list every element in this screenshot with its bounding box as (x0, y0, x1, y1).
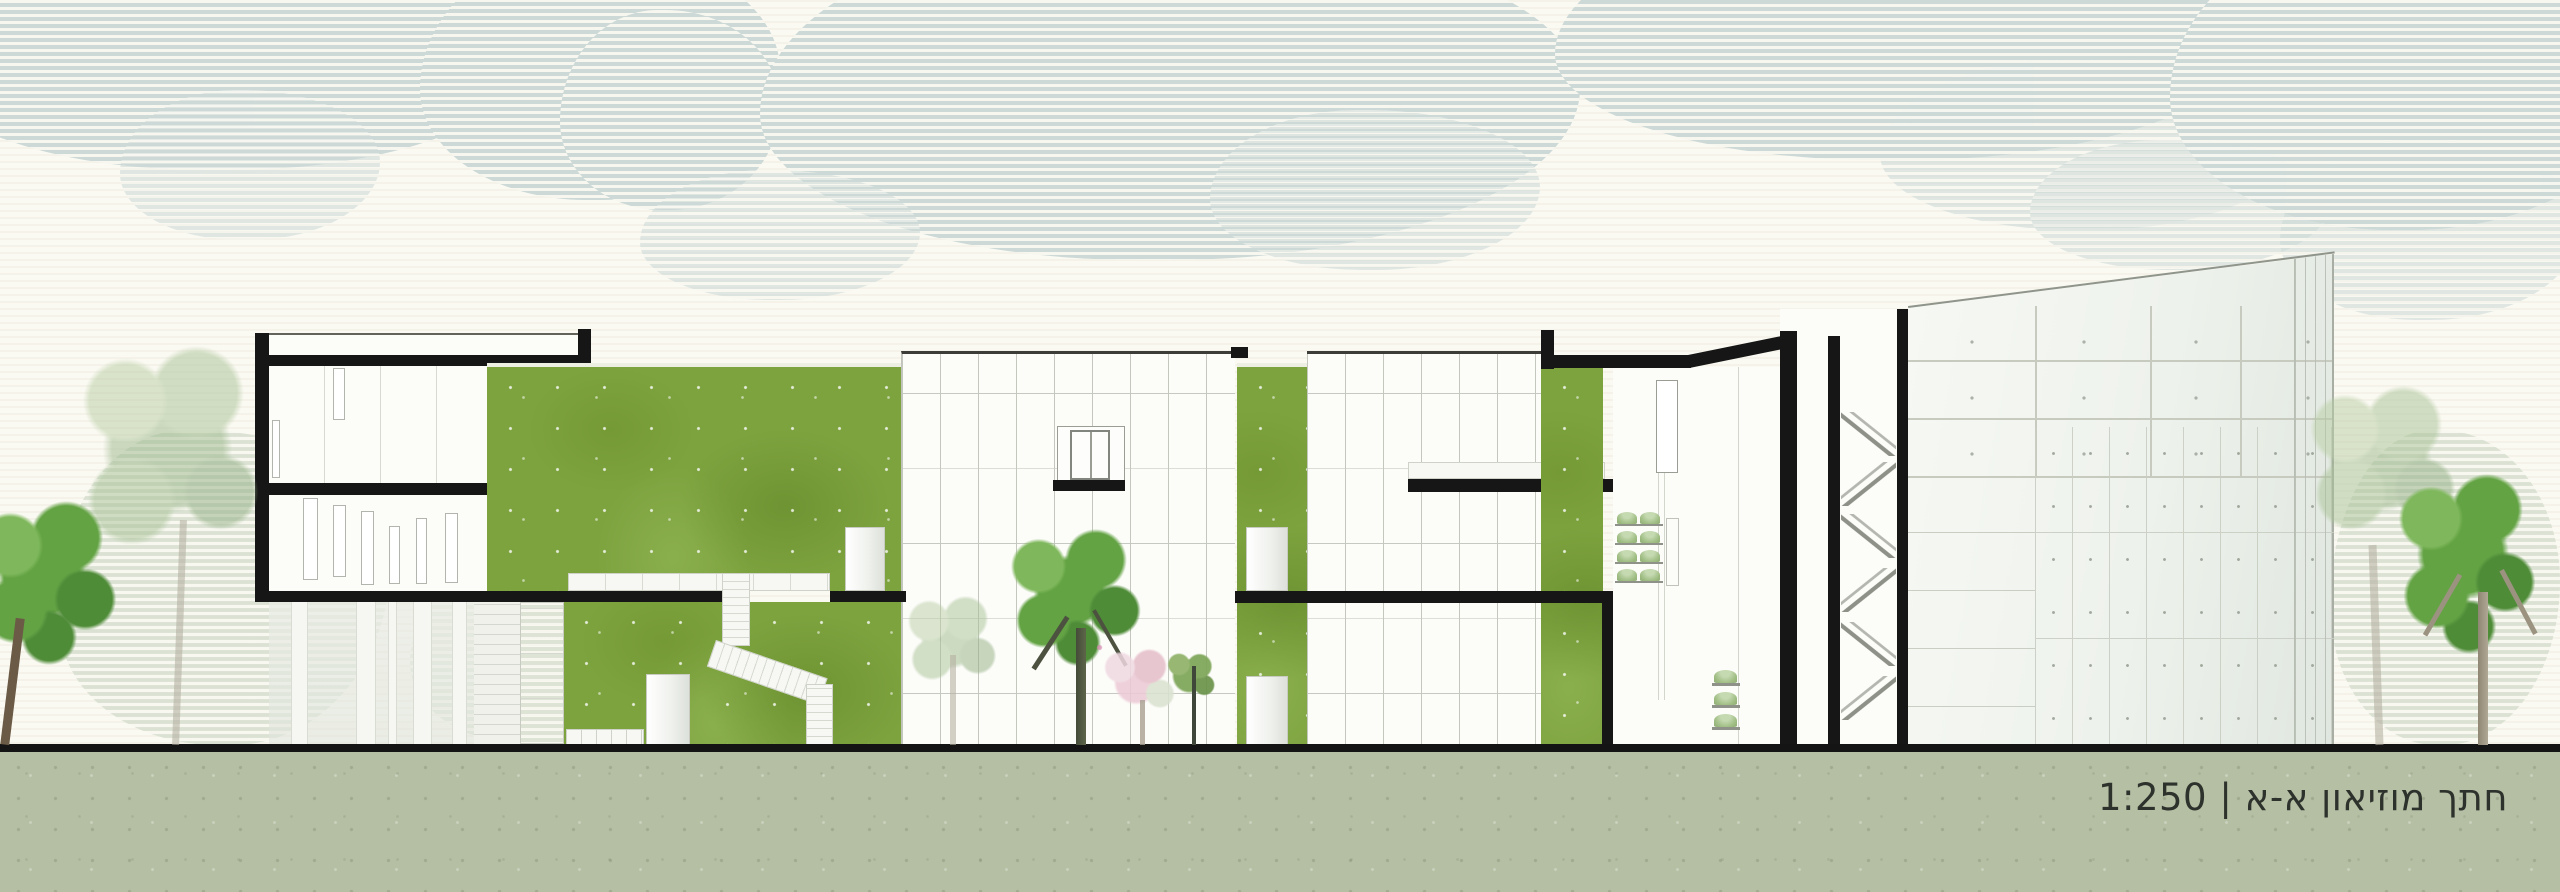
exhibit-panel (416, 518, 427, 584)
shelf-plant (1617, 550, 1637, 562)
tree-foreground-left (0, 482, 157, 697)
halftone-tree-mass (2030, 140, 2330, 270)
cut-wall (1828, 336, 1840, 753)
plant-shelf (1615, 524, 1663, 526)
stair-flight (1841, 462, 1896, 506)
facade-panels-middle (1307, 351, 1541, 745)
window (1070, 430, 1110, 480)
piloti-column (356, 602, 376, 744)
courtyard-slab (830, 591, 902, 602)
walkway-bridge (568, 573, 830, 591)
parapet-post (578, 329, 591, 367)
shelf-plant (1640, 531, 1660, 543)
courtyard-slab (487, 591, 725, 602)
shelf-plant (1617, 531, 1637, 543)
ground-band (0, 752, 2560, 892)
halftone-tree-mass (640, 170, 920, 300)
tree-trunk (1192, 666, 1196, 745)
shelf-plant (1640, 569, 1660, 581)
exhibit-panel (445, 513, 458, 583)
green-hill-upper (487, 363, 901, 591)
plant-shelf (1615, 543, 1663, 545)
garden-plinth (566, 729, 644, 745)
planter-plant (1714, 714, 1737, 727)
garden-stair-upper (722, 573, 750, 646)
shelf-plant (1617, 512, 1637, 524)
tree-trunk (2478, 592, 2488, 745)
tree-trunk (950, 655, 956, 745)
exhibit-panel (361, 511, 374, 585)
planter-plant (1714, 670, 1737, 683)
stair-flight (1841, 514, 1896, 558)
planter-shelf (1712, 683, 1740, 686)
tree-trunk (1140, 700, 1145, 745)
exhibit-panel (303, 498, 318, 580)
shelf-plant (1640, 512, 1660, 524)
stair-flight (1841, 622, 1896, 666)
panel-joints-left (1908, 475, 2035, 745)
tree-foreground-right (2375, 443, 2560, 698)
garden-stair-lower (806, 684, 833, 745)
green-wall-strip (1541, 363, 1603, 745)
planter-plant (1714, 692, 1737, 705)
roof-band (1553, 355, 1691, 368)
concrete-panel-block (1908, 252, 2334, 745)
piloti-column (388, 602, 397, 744)
undercroft-wall (474, 602, 520, 744)
halftone-tree-mass (1210, 110, 1540, 270)
cut-wall (1780, 331, 1797, 753)
stair-flight (1841, 412, 1896, 456)
hanging-panel (333, 368, 345, 420)
stair-flight (1841, 676, 1896, 720)
halftone-tree-mass (120, 90, 380, 240)
exhibit-panel (389, 526, 400, 584)
interior-line (1738, 367, 1739, 745)
exhibit-panel (333, 505, 346, 577)
architectural-section-drawing: חתך מוזיאון א-א | 1:250 (0, 0, 2560, 892)
shelf-plant (1640, 550, 1660, 562)
shelf-plant (1617, 569, 1637, 581)
interior-room-right (1613, 367, 1780, 745)
parapet-cap (1231, 347, 1248, 358)
piloti-column (452, 602, 467, 744)
stair-flight (1841, 568, 1896, 612)
section-title: חתך מוזיאון א-א | 1:250 (2098, 776, 2508, 819)
column-cylinder (1246, 527, 1288, 591)
planter-shelf (1712, 705, 1740, 708)
ground-line (0, 744, 2560, 752)
parapet-band (269, 333, 579, 355)
tree-trunk (1076, 628, 1086, 745)
frame-outline (1666, 518, 1679, 586)
piloti-column (413, 602, 432, 744)
column-cylinder (1246, 676, 1288, 745)
plant-shelf (1615, 562, 1663, 564)
plant-shelf (1615, 581, 1663, 583)
door-outline (1656, 380, 1678, 473)
window-sill (1053, 480, 1125, 491)
column-cylinder (646, 674, 690, 745)
planter-shelf (1712, 727, 1740, 730)
column-cylinder (520, 602, 564, 744)
column-cylinder (845, 527, 885, 591)
